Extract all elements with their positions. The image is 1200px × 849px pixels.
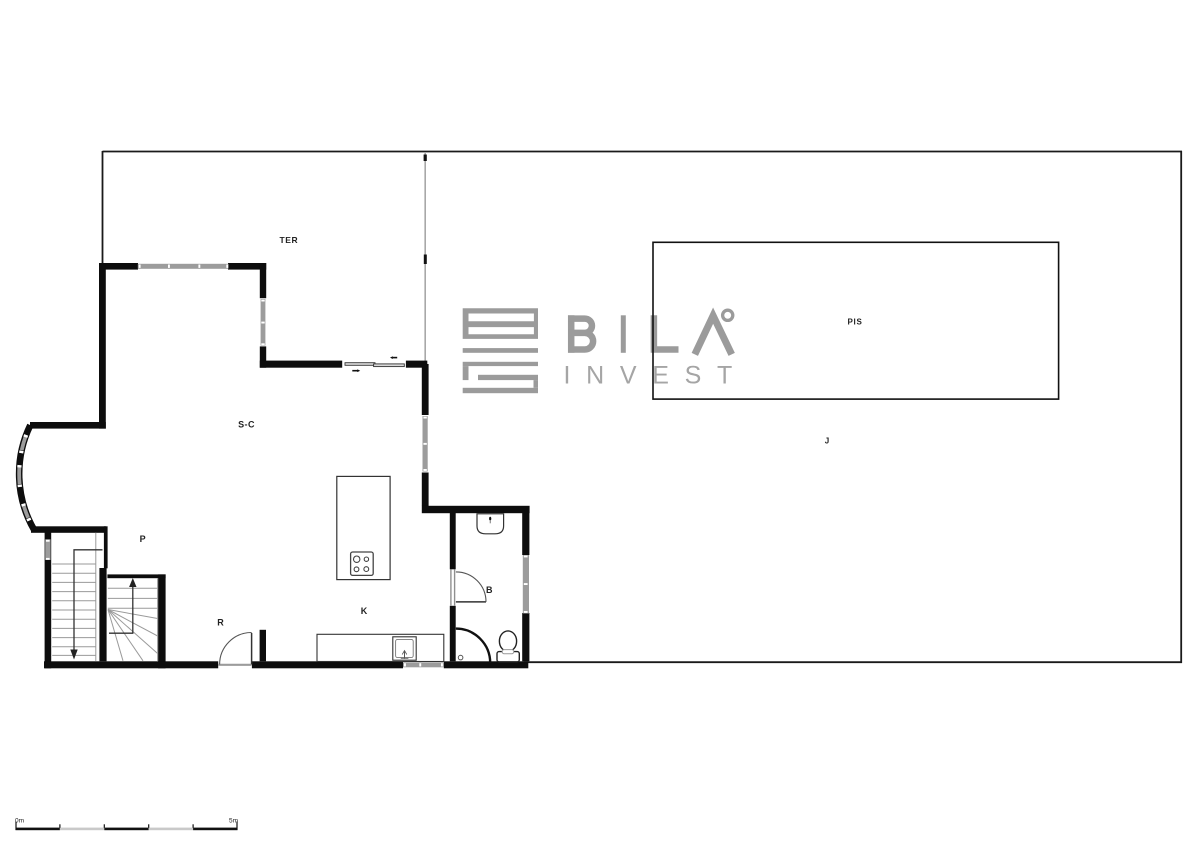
svg-text:5m: 5m (229, 818, 238, 825)
svg-text:TER: TER (279, 235, 298, 245)
svg-text:K: K (361, 606, 368, 616)
svg-text:R: R (217, 618, 224, 628)
svg-text:0m: 0m (15, 818, 24, 825)
svg-text:P: P (140, 534, 146, 544)
svg-text:B: B (486, 585, 493, 595)
svg-text:S-C: S-C (238, 420, 255, 430)
svg-text:J: J (825, 437, 829, 446)
svg-text:INVEST: INVEST (564, 361, 749, 389)
svg-text:PIS: PIS (848, 318, 863, 327)
